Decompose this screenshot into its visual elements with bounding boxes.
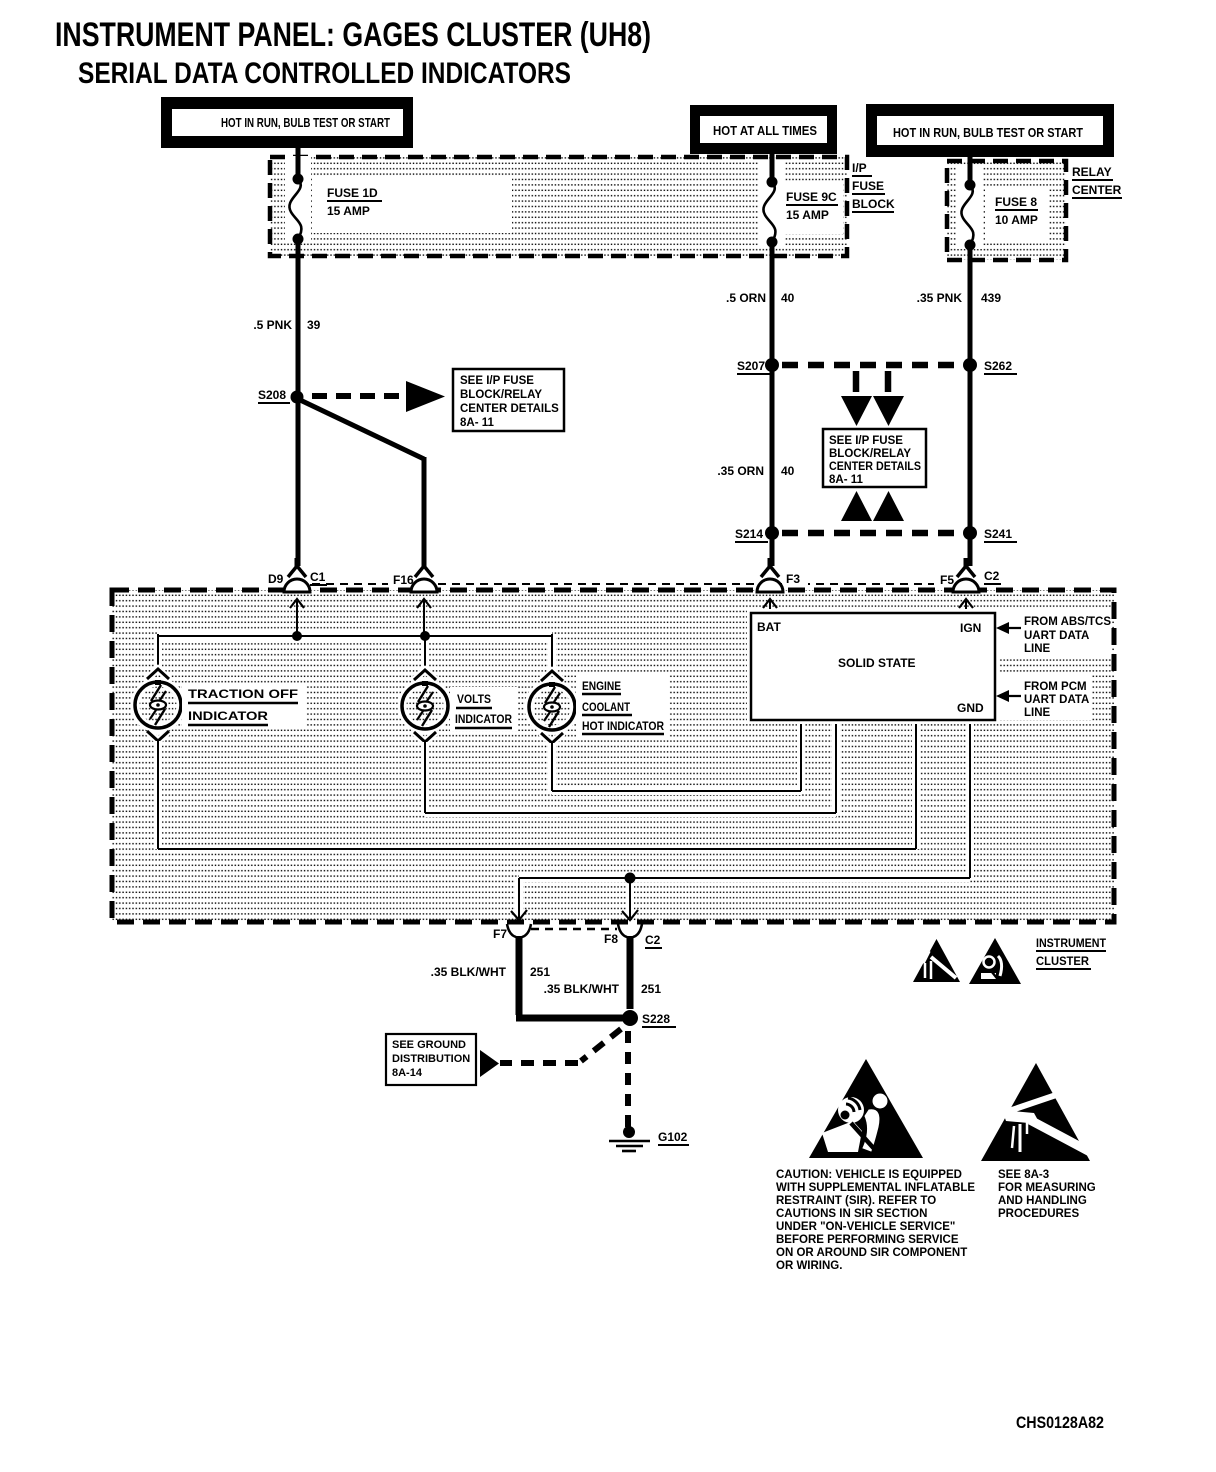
svg-text:.35 BLK/WHT: .35 BLK/WHT (431, 965, 507, 979)
svg-text:FUSE: FUSE (852, 179, 884, 193)
svg-text:8A- 11: 8A- 11 (829, 474, 863, 486)
svg-text:251: 251 (641, 982, 661, 996)
svg-text:CENTER DETAILS: CENTER DETAILS (460, 403, 559, 415)
svg-text:40: 40 (781, 291, 795, 305)
svg-text:S228: S228 (642, 1012, 670, 1026)
svg-text:S208: S208 (258, 388, 286, 402)
svg-text:GND: GND (957, 701, 984, 715)
svg-text:CLUSTER: CLUSTER (1036, 954, 1089, 968)
svg-text:RESTRAINT (SIR). REFER TO: RESTRAINT (SIR). REFER TO (776, 1195, 936, 1207)
svg-text:VOLTS: VOLTS (457, 692, 491, 706)
svg-text:HOT AT ALL TIMES: HOT AT ALL TIMES (713, 123, 817, 138)
svg-text:FUSE 8: FUSE 8 (995, 195, 1037, 209)
svg-text:TRACTION OFF: TRACTION OFF (188, 687, 298, 701)
svg-text:F3: F3 (786, 572, 800, 586)
svg-text:HOT INDICATOR: HOT INDICATOR (582, 719, 664, 733)
svg-text:CENTER: CENTER (1072, 183, 1122, 197)
svg-text:INSTRUMENT PANEL: GAGES CLUST: INSTRUMENT PANEL: GAGES CLUSTER (UH8) (55, 16, 651, 54)
svg-text:SOLID STATE: SOLID STATE (838, 656, 916, 670)
svg-text:INDICATOR: INDICATOR (455, 712, 512, 726)
svg-text:BLOCK/RELAY: BLOCK/RELAY (460, 389, 542, 401)
svg-text:39: 39 (307, 318, 321, 332)
svg-text:FUSE 1D: FUSE 1D (327, 186, 378, 200)
svg-text:439: 439 (981, 291, 1001, 305)
svg-text:F8: F8 (604, 932, 618, 946)
svg-text:DISTRIBUTION: DISTRIBUTION (392, 1053, 470, 1065)
svg-text:IGN: IGN (960, 621, 981, 635)
svg-text:HOT IN RUN, BULB TEST OR START: HOT IN RUN, BULB TEST OR START (221, 115, 390, 130)
svg-text:.5 ORN: .5 ORN (726, 291, 766, 305)
svg-text:UART DATA: UART DATA (1024, 694, 1089, 706)
svg-text:RELAY: RELAY (1072, 165, 1112, 179)
svg-text:HOT IN RUN, BULB TEST OR START: HOT IN RUN, BULB TEST OR START (893, 125, 1083, 140)
svg-text:S262: S262 (984, 359, 1012, 373)
svg-text:8A-14: 8A-14 (392, 1067, 423, 1079)
svg-text:C2: C2 (984, 569, 1000, 583)
svg-text:10 AMP: 10 AMP (995, 213, 1038, 227)
svg-text:251: 251 (530, 965, 550, 979)
svg-text:INSTRUMENT: INSTRUMENT (1036, 936, 1107, 950)
svg-text:INDICATOR: INDICATOR (188, 709, 268, 723)
svg-text:SEE GROUND: SEE GROUND (392, 1039, 466, 1051)
svg-text:COOLANT: COOLANT (582, 700, 631, 714)
svg-text:FUSE 9C: FUSE 9C (786, 190, 837, 204)
svg-text:CAUTION: VEHICLE IS EQUIPPED: CAUTION: VEHICLE IS EQUIPPED (776, 1169, 962, 1181)
svg-text:.35 BLK/WHT: .35 BLK/WHT (544, 982, 620, 996)
svg-text:D9: D9 (268, 572, 284, 586)
svg-text:ON OR AROUND SIR COMPONENT: ON OR AROUND SIR COMPONENT (776, 1247, 967, 1259)
svg-text:FOR MEASURING: FOR MEASURING (998, 1182, 1096, 1194)
svg-text:LINE: LINE (1024, 707, 1051, 719)
svg-text:F7: F7 (493, 927, 507, 941)
svg-text:PROCEDURES: PROCEDURES (998, 1208, 1079, 1220)
svg-text:.5 PNK: .5 PNK (253, 318, 292, 332)
svg-text:BAT: BAT (757, 620, 781, 634)
svg-text:BLOCK: BLOCK (852, 197, 895, 211)
svg-text:.35 PNK: .35 PNK (917, 291, 963, 305)
svg-text:.35 ORN: .35 ORN (717, 464, 764, 478)
svg-text:BEFORE PERFORMING SERVICE: BEFORE PERFORMING SERVICE (776, 1234, 959, 1246)
svg-text:I/P: I/P (852, 161, 867, 175)
svg-text:15 AMP: 15 AMP (786, 208, 829, 222)
svg-text:SERIAL DATA CONTROLLED INDICAT: SERIAL DATA CONTROLLED INDICATORS (78, 57, 571, 90)
svg-text:S214: S214 (735, 527, 763, 541)
svg-text:CAUTIONS IN SIR SECTION: CAUTIONS IN SIR SECTION (776, 1208, 927, 1220)
svg-text:LINE: LINE (1024, 643, 1051, 655)
svg-text:SEE 8A-3: SEE 8A-3 (998, 1169, 1049, 1181)
svg-text:15 AMP: 15 AMP (327, 204, 370, 218)
svg-text:8A- 11: 8A- 11 (460, 417, 494, 429)
svg-text:FROM ABS/TCS: FROM ABS/TCS (1024, 616, 1111, 628)
svg-text:OR WIRING.: OR WIRING. (776, 1260, 842, 1272)
svg-text:CENTER DETAILS: CENTER DETAILS (829, 461, 921, 473)
svg-text:ENGINE: ENGINE (582, 679, 621, 693)
svg-text:WITH SUPPLEMENTAL INFLATABLE: WITH SUPPLEMENTAL INFLATABLE (776, 1182, 975, 1194)
svg-text:40: 40 (781, 464, 795, 478)
svg-text:G102: G102 (658, 1130, 688, 1144)
svg-text:SEE I/P FUSE: SEE I/P FUSE (460, 375, 534, 387)
svg-text:BLOCK/RELAY: BLOCK/RELAY (829, 448, 911, 460)
svg-text:UNDER "ON-VEHICLE SERVICE": UNDER "ON-VEHICLE SERVICE" (776, 1221, 955, 1233)
svg-text:F16: F16 (393, 573, 414, 587)
svg-text:S207: S207 (737, 359, 765, 373)
svg-text:C1: C1 (310, 570, 326, 584)
svg-text:FROM PCM: FROM PCM (1024, 681, 1087, 693)
svg-text:SEE I/P FUSE: SEE I/P FUSE (829, 435, 903, 447)
svg-text:AND HANDLING: AND HANDLING (998, 1195, 1087, 1207)
svg-text:CHS0128A82: CHS0128A82 (1016, 1413, 1104, 1432)
svg-text:F5: F5 (940, 573, 954, 587)
svg-text:C2: C2 (645, 933, 661, 947)
svg-text:S241: S241 (984, 527, 1012, 541)
svg-text:UART DATA: UART DATA (1024, 630, 1089, 642)
